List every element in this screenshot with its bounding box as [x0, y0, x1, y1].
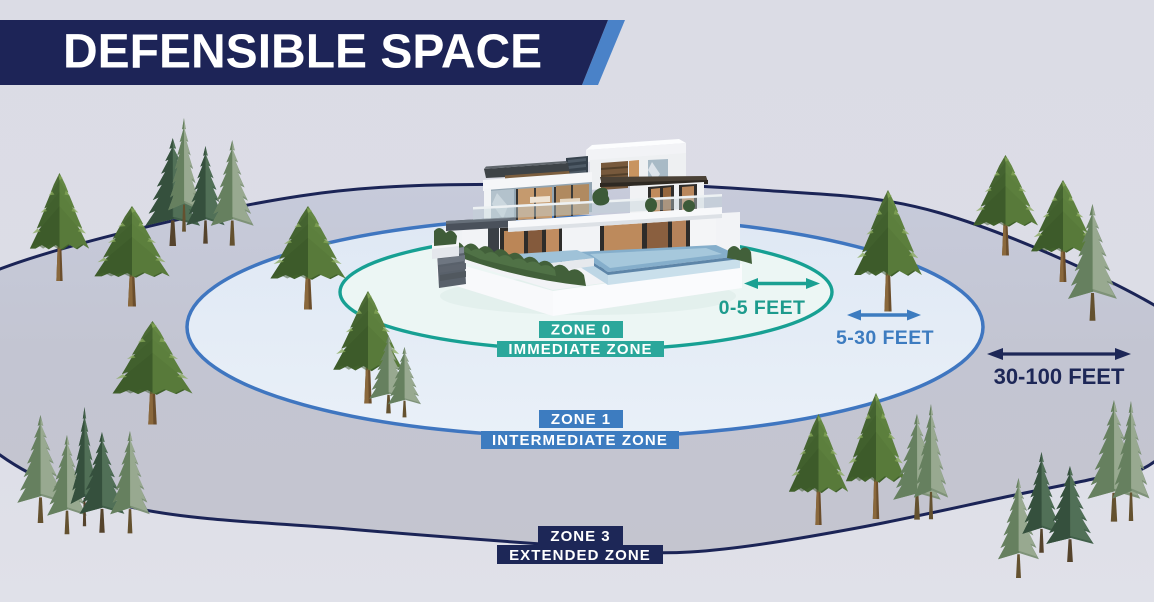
- svg-text:INTERMEDIATE ZONE: INTERMEDIATE ZONE: [492, 432, 668, 449]
- svg-text:DEFENSIBLE SPACE: DEFENSIBLE SPACE: [63, 26, 542, 79]
- svg-text:5-30 FEET: 5-30 FEET: [836, 327, 934, 349]
- svg-text:EXTENDED ZONE: EXTENDED ZONE: [509, 547, 651, 564]
- svg-text:ZONE 3: ZONE 3: [550, 528, 610, 545]
- svg-text:ZONE 0: ZONE 0: [551, 322, 611, 339]
- svg-text:0-5 FEET: 0-5 FEET: [719, 297, 806, 319]
- svg-text:30-100 FEET: 30-100 FEET: [994, 364, 1125, 389]
- svg-text:IMMEDIATE ZONE: IMMEDIATE ZONE: [508, 341, 652, 358]
- svg-text:ZONE 1: ZONE 1: [551, 411, 611, 428]
